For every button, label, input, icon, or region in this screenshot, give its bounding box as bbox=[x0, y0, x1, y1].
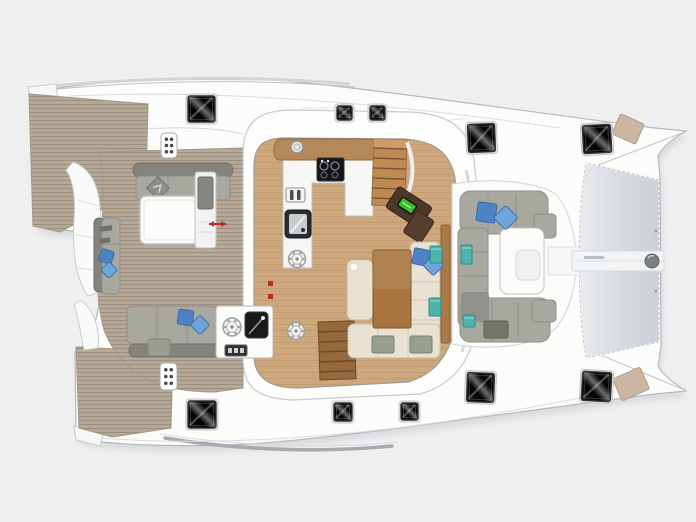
vent-icon bbox=[223, 318, 241, 336]
deck-hatch-icon bbox=[464, 370, 496, 404]
vent-icon bbox=[289, 251, 306, 268]
deck-hatch-icon bbox=[186, 94, 217, 124]
teal-cushion bbox=[463, 315, 475, 327]
teal-cushion bbox=[429, 298, 441, 316]
teal-cushion bbox=[430, 246, 442, 263]
cockpit-side-table bbox=[148, 339, 170, 356]
floor-plan-canvas bbox=[0, 0, 696, 522]
deck-hatch-icon bbox=[399, 401, 420, 422]
deck-hatch-icon bbox=[186, 399, 218, 430]
aft-galley-module bbox=[195, 172, 216, 248]
cockpit-bench-back2 bbox=[129, 344, 221, 357]
deck-hatch-icon bbox=[335, 104, 354, 122]
cockpit-bench-back bbox=[133, 163, 233, 177]
cockpit-table bbox=[140, 196, 200, 244]
teal-cushion bbox=[461, 245, 472, 264]
sink-round-icon bbox=[291, 141, 303, 153]
galley-wood-worktop bbox=[274, 139, 374, 160]
deck-hatch-icon bbox=[368, 104, 387, 122]
door-marker-dot bbox=[268, 281, 273, 286]
round-pillow bbox=[350, 263, 358, 271]
deck-hatch-icon bbox=[332, 401, 354, 423]
fwd-step-pad bbox=[484, 321, 508, 338]
vent-icon bbox=[288, 323, 305, 340]
footstool bbox=[372, 336, 394, 353]
deck-hatch-icon bbox=[580, 122, 614, 156]
trampoline bbox=[572, 163, 664, 358]
deck-hatch-icon bbox=[465, 121, 497, 154]
cooktop-icon bbox=[317, 158, 344, 181]
fridge-icon bbox=[286, 188, 305, 202]
fwd-seat-right-b bbox=[532, 300, 556, 322]
oven-icon bbox=[285, 210, 311, 238]
saloon-sideboard bbox=[441, 225, 450, 343]
deck-hatch-icon bbox=[579, 369, 614, 404]
six-dot-panel-icon bbox=[160, 363, 177, 390]
six-dot-panel-icon bbox=[161, 133, 177, 158]
catamaran-deck-plan bbox=[0, 0, 696, 522]
door-marker-dot bbox=[268, 294, 273, 299]
footstool bbox=[410, 336, 432, 353]
